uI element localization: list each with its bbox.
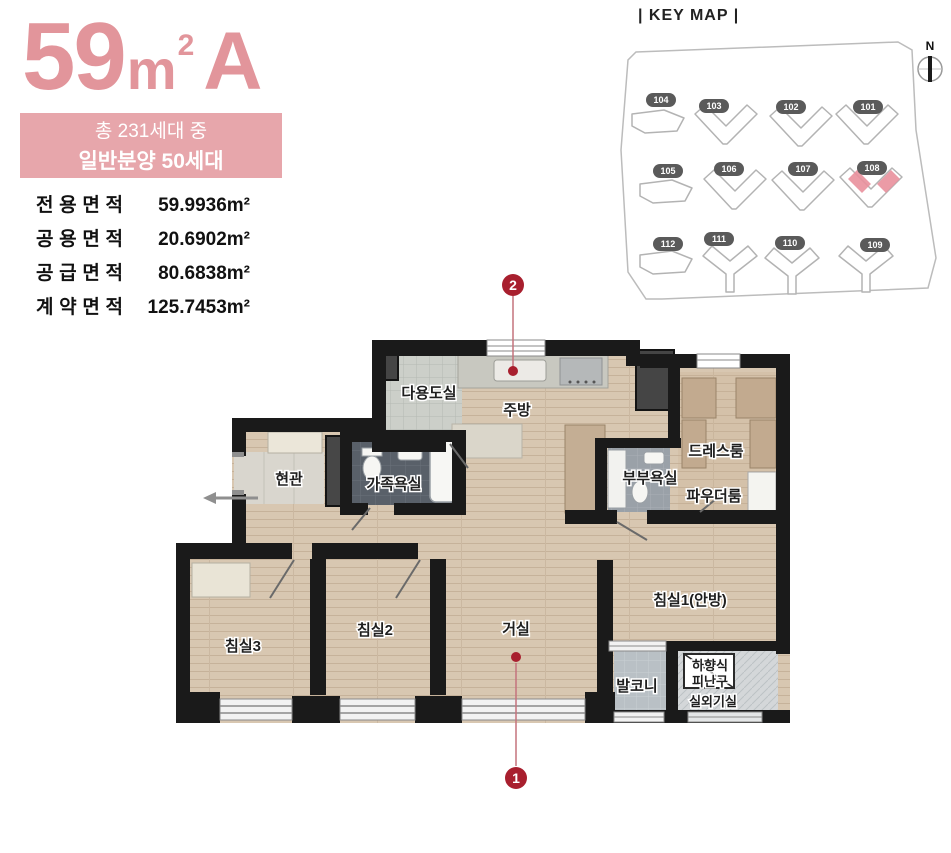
room-label-family-bath: 가족욕실 <box>366 476 421 493</box>
building-label: 106 <box>721 164 736 174</box>
bed3-window <box>220 699 292 720</box>
building-label: 104 <box>653 95 668 105</box>
balcony-bottom-window <box>614 712 664 722</box>
building-label: 105 <box>660 166 675 176</box>
marker-number: 1 <box>512 770 520 786</box>
floorplan-page: 59m2A 총 231세대 중 일반분양 50세대 전용면적 59.9936m²… <box>0 0 951 853</box>
bed3-closet <box>192 563 250 597</box>
room-label-outdoor-unit: 실외기실 <box>689 694 737 709</box>
wardrobe <box>750 420 776 468</box>
room-label-powder: 파우더룸 <box>686 488 741 505</box>
room-label-bed2: 침실2 <box>357 622 393 639</box>
escape-hatch-label-line1: 하향식 <box>692 658 728 673</box>
building-label: 107 <box>795 164 810 174</box>
compass-north-label: N <box>926 39 935 53</box>
wardrobe <box>736 378 776 418</box>
compass-icon: N <box>918 39 942 82</box>
building-label: 103 <box>706 101 721 111</box>
bed2-window <box>340 699 415 720</box>
floorplan: 다용도실 주방 드레스룸 현관 가족욕실 부부욕실 파우더룸 침실1(안방) 침… <box>176 274 790 789</box>
dressroom-window <box>697 354 740 368</box>
room-label-living: 거실 <box>502 621 530 638</box>
building-label: 112 <box>661 239 676 249</box>
building-label: 111 <box>712 234 726 244</box>
room-label-utility: 다용도실 <box>401 385 456 402</box>
room-label-balcony: 발코니 <box>616 678 657 695</box>
room-label-dressroom: 드레스룸 <box>688 443 743 460</box>
room-label-bed1: 침실1(안방) <box>653 591 727 609</box>
room-label-entry: 현관 <box>275 471 303 488</box>
living-window <box>462 699 585 720</box>
kitchen-cooktop <box>560 358 602 385</box>
room-label-bed3: 침실3 <box>225 638 261 655</box>
room-label-master-bath: 부부욕실 <box>622 470 677 487</box>
building-label: 109 <box>867 240 882 250</box>
marker-number: 2 <box>509 277 517 293</box>
washbasin <box>644 452 664 464</box>
building-label: 102 <box>783 102 798 112</box>
wardrobe <box>682 378 716 418</box>
escape-hatch-label-line2: 피난구 <box>692 674 728 689</box>
powder-counter <box>748 472 776 512</box>
room-label-kitchen: 주방 <box>503 401 531 419</box>
building-label: 101 <box>860 102 875 112</box>
plan-graphics: N 104 103 102 <box>0 0 951 853</box>
building-label: 108 <box>864 163 879 173</box>
outdoor-unit-grille <box>688 712 762 722</box>
balcony-top-window <box>609 641 666 651</box>
kitchen-window <box>487 340 545 356</box>
kitchen-sink <box>494 360 546 381</box>
building-label: 110 <box>783 238 798 248</box>
shoe-cabinet <box>268 432 322 453</box>
keymap: N 104 103 102 <box>621 39 942 299</box>
